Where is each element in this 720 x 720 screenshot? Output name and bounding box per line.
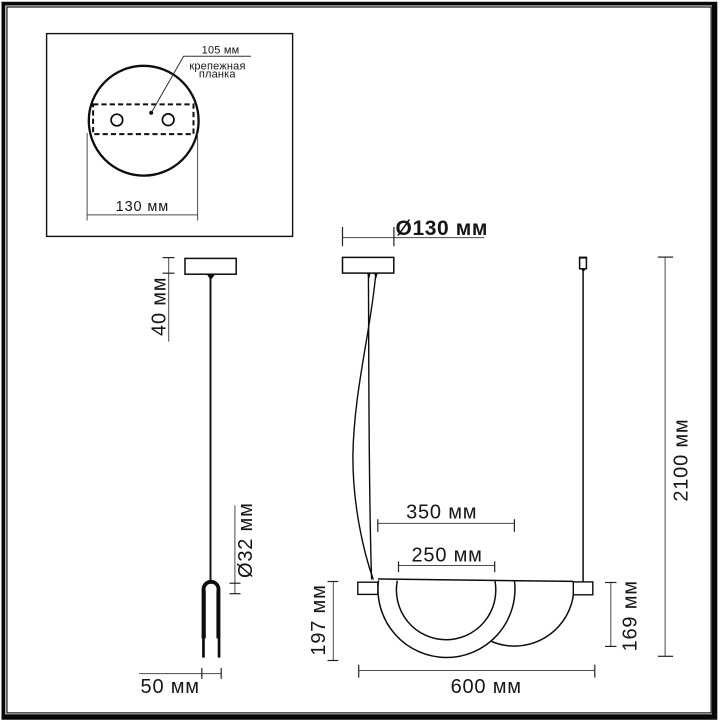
- svg-text:планка: планка: [199, 69, 237, 81]
- svg-text:350 мм: 350 мм: [406, 501, 477, 523]
- svg-text:600 мм: 600 мм: [451, 676, 522, 698]
- svg-text:169 мм: 169 мм: [620, 580, 642, 651]
- svg-text:250 мм: 250 мм: [411, 545, 482, 567]
- svg-text:50 мм: 50 мм: [141, 676, 200, 698]
- svg-text:2100 мм: 2100 мм: [671, 419, 693, 502]
- svg-text:105 мм: 105 мм: [202, 45, 240, 57]
- svg-text:Ø32 мм: Ø32 мм: [235, 502, 257, 578]
- svg-text:Ø130 мм: Ø130 мм: [396, 217, 488, 240]
- svg-text:197 мм: 197 мм: [308, 584, 330, 655]
- svg-text:130 мм: 130 мм: [116, 199, 170, 215]
- svg-text:40 мм: 40 мм: [149, 277, 171, 336]
